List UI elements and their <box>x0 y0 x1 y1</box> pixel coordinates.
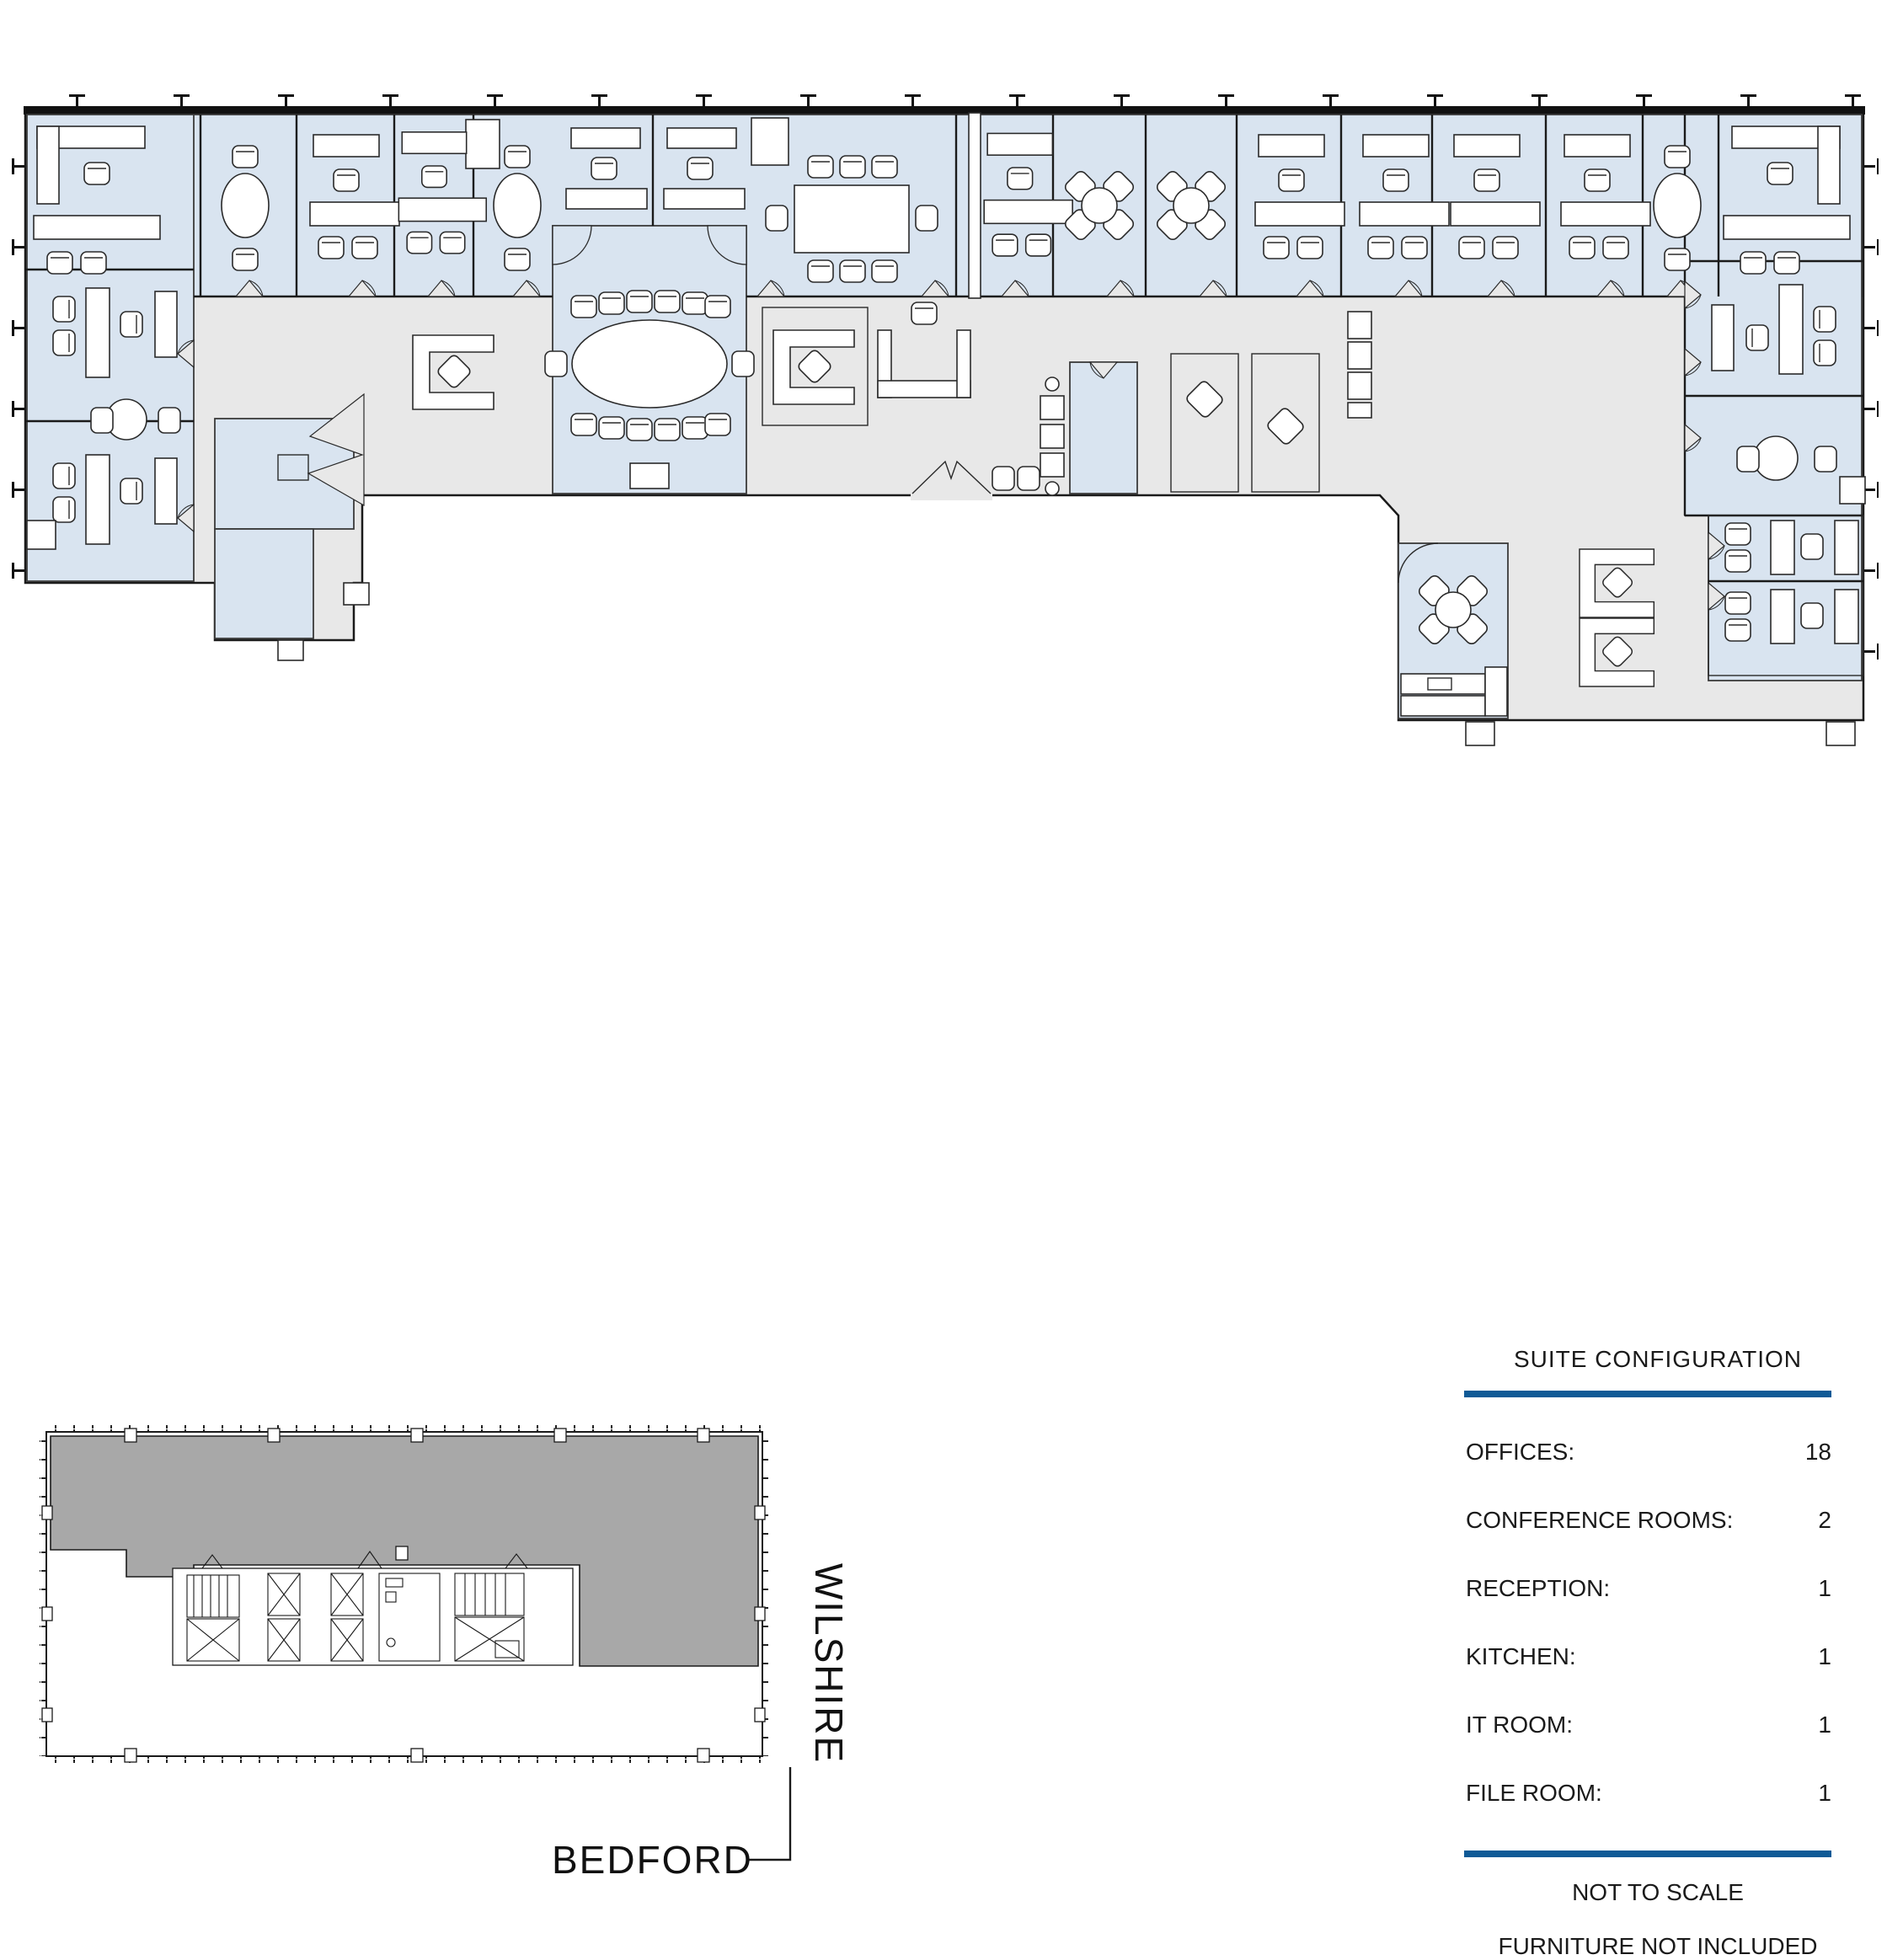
legend-label: RECEPTION: <box>1466 1575 1610 1602</box>
legend-label: KITCHEN: <box>1466 1643 1576 1670</box>
legend-rule-bottom <box>1464 1851 1831 1857</box>
legend-row-it-room: IT ROOM: 1 <box>1466 1712 1831 1738</box>
legend-value: 18 <box>1805 1439 1831 1466</box>
legend-row-reception: RECEPTION: 1 <box>1466 1575 1831 1602</box>
legend-label: FILE ROOM: <box>1466 1780 1602 1807</box>
tick-marks-left <box>10 126 25 581</box>
key-plan: WILSHIRE BEDFORD <box>40 1425 851 1882</box>
legend-value: 2 <box>1818 1507 1831 1534</box>
legend-row-offices: OFFICES: 18 <box>1466 1439 1831 1466</box>
legend-label: CONFERENCE ROOMS: <box>1466 1507 1733 1534</box>
legend-row-conference: CONFERENCE ROOMS: 2 <box>1466 1507 1831 1534</box>
legend-label: OFFICES: <box>1466 1439 1574 1466</box>
legend-title: SUITE CONFIGURATION <box>1451 1346 1865 1373</box>
street-leader-line <box>748 1767 790 1860</box>
legend-label: IT ROOM: <box>1466 1712 1573 1738</box>
reception-chair <box>911 302 937 324</box>
legend-value: 1 <box>1818 1575 1831 1602</box>
exterior-wall-top <box>24 106 1865 115</box>
street-label-wilshire: WILSHIRE <box>807 1563 851 1764</box>
building-core <box>173 1551 573 1665</box>
legend-value: 1 <box>1818 1780 1831 1807</box>
tick-marks-right <box>1863 126 1879 718</box>
annex-room-lower <box>215 529 313 638</box>
file-room <box>1070 362 1137 494</box>
wall-sliver <box>969 113 981 298</box>
tick-marks-top <box>25 93 1863 108</box>
shaft-column <box>751 118 788 165</box>
shaft-column <box>466 120 500 168</box>
street-label-bedford: BEDFORD <box>552 1838 753 1882</box>
legend-rule-top <box>1464 1391 1831 1397</box>
legend-value: 1 <box>1818 1712 1831 1738</box>
legend-row-file-room: FILE ROOM: 1 <box>1466 1780 1831 1807</box>
suite-configuration-panel: SUITE CONFIGURATION OFFICES: 18 CONFEREN… <box>1451 1346 1865 1960</box>
note-furniture: FURNITURE NOT INCLUDED <box>1451 1933 1865 1960</box>
suite-plan <box>10 93 1879 745</box>
legend-row-kitchen: KITCHEN: 1 <box>1466 1643 1831 1670</box>
note-not-to-scale: NOT TO SCALE <box>1451 1879 1865 1906</box>
legend-value: 1 <box>1818 1643 1831 1670</box>
